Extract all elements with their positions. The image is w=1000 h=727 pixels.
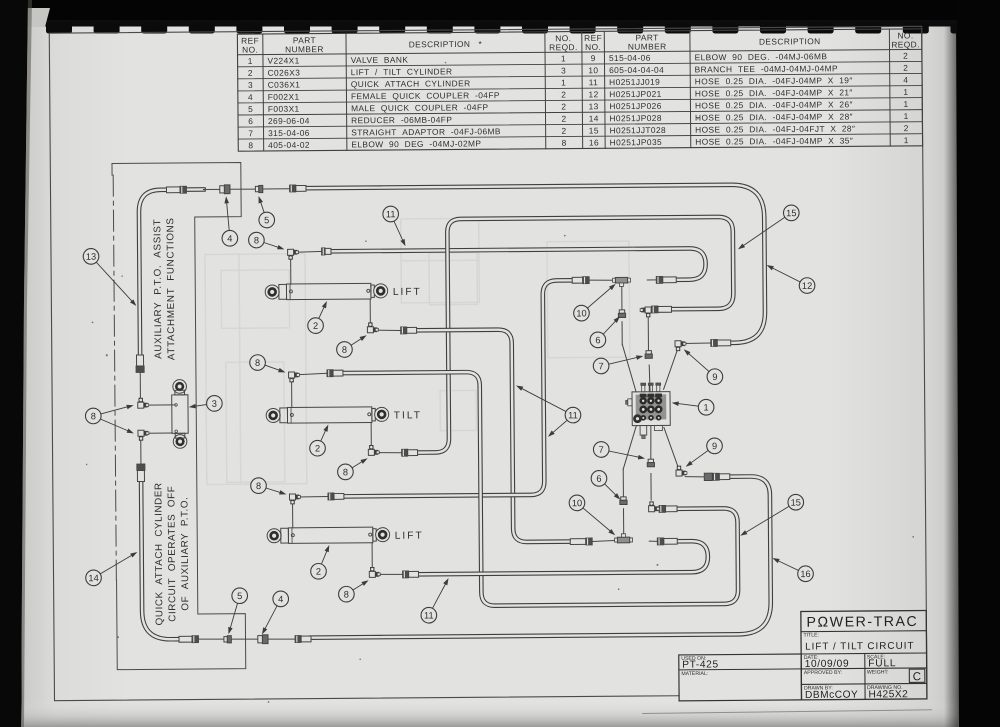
svg-text:12: 12 xyxy=(802,281,812,291)
svg-text:15: 15 xyxy=(589,125,599,135)
svg-text:2: 2 xyxy=(561,90,566,100)
svg-text:5: 5 xyxy=(264,215,269,225)
svg-text:DESCRIPTION: DESCRIPTION xyxy=(759,36,821,46)
svg-text:2: 2 xyxy=(315,443,320,453)
svg-text:16: 16 xyxy=(800,569,810,579)
svg-text:13: 13 xyxy=(86,252,96,262)
svg-text:11: 11 xyxy=(424,610,434,620)
svg-text:LIFT / TILT CIRCUIT: LIFT / TILT CIRCUIT xyxy=(805,641,914,653)
svg-text:NO.: NO. xyxy=(242,45,258,55)
svg-text:8: 8 xyxy=(562,138,567,148)
svg-text:1: 1 xyxy=(904,111,909,121)
svg-text:1: 1 xyxy=(561,77,566,87)
svg-text:C: C xyxy=(913,671,921,683)
svg-text:1: 1 xyxy=(904,135,909,145)
svg-text:REQD.: REQD. xyxy=(891,39,920,49)
svg-text:F002X1: F002X1 xyxy=(268,92,300,102)
svg-text:2: 2 xyxy=(561,114,566,124)
svg-text:3: 3 xyxy=(561,65,566,75)
svg-text:QUICK ATTACH CYLINDER: QUICK ATTACH CYLINDER xyxy=(351,78,471,89)
svg-text:14: 14 xyxy=(589,113,599,123)
svg-text:515-04-06: 515-04-06 xyxy=(609,53,651,63)
svg-text:2: 2 xyxy=(313,321,318,331)
svg-text:405-04-02: 405-04-02 xyxy=(268,140,310,150)
svg-text:HOSE 0.25 DIA. -04FJ-04MP: HOSE 0.25 DIA. -04FJ-04MP X 26″ xyxy=(695,99,853,110)
svg-text:H0251JJT028: H0251JJT028 xyxy=(610,125,667,135)
svg-text:2: 2 xyxy=(903,51,908,61)
svg-text:269-06-04: 269-06-04 xyxy=(268,116,310,126)
svg-text:10/09/09: 10/09/09 xyxy=(805,659,850,670)
svg-text:APPROVED BY:: APPROVED BY: xyxy=(804,670,842,676)
svg-text:2: 2 xyxy=(904,123,909,133)
svg-text:7: 7 xyxy=(599,445,604,455)
svg-text:NUMBER: NUMBER xyxy=(285,44,324,54)
svg-text:4: 4 xyxy=(248,92,253,102)
svg-text:REQD.: REQD. xyxy=(549,42,578,52)
svg-text:6: 6 xyxy=(248,116,253,126)
svg-text:FULL: FULL xyxy=(868,658,896,669)
svg-text:10: 10 xyxy=(576,308,586,318)
svg-text:9: 9 xyxy=(712,441,717,451)
svg-text:7: 7 xyxy=(248,128,253,138)
svg-text:3: 3 xyxy=(212,399,217,409)
svg-text:8: 8 xyxy=(91,411,96,421)
svg-text:5: 5 xyxy=(237,591,242,601)
svg-text:H0251JP028: H0251JP028 xyxy=(609,113,662,123)
svg-text:DBMcCOY: DBMcCOY xyxy=(805,690,858,701)
svg-text:10: 10 xyxy=(588,65,598,75)
svg-text:V224X1: V224X1 xyxy=(267,55,299,65)
svg-text:1: 1 xyxy=(561,53,566,63)
svg-text:F003X1: F003X1 xyxy=(268,104,300,114)
svg-text:NUMBER: NUMBER xyxy=(628,41,667,51)
svg-text:WEIGHT:: WEIGHT: xyxy=(867,670,889,676)
svg-text:14: 14 xyxy=(88,573,98,583)
svg-text:TILT: TILT xyxy=(394,410,422,421)
svg-text:2: 2 xyxy=(561,102,566,112)
svg-text:8: 8 xyxy=(255,358,260,368)
svg-text:12: 12 xyxy=(588,89,598,99)
svg-text:605-04-04-04: 605-04-04-04 xyxy=(609,65,664,75)
svg-text:C026X3: C026X3 xyxy=(268,68,301,78)
svg-text:CIRCUIT OPERATES OFF: CIRCUIT OPERATES OFF xyxy=(166,486,178,622)
svg-text:11: 11 xyxy=(589,77,599,87)
svg-text:8: 8 xyxy=(256,481,261,491)
svg-text:1: 1 xyxy=(903,99,908,109)
svg-text:4: 4 xyxy=(278,594,283,604)
svg-text:NO.: NO. xyxy=(585,42,601,52)
svg-text:H0251JP035: H0251JP035 xyxy=(610,137,663,147)
svg-text:AUXILIARY P.T.O. ASSIST: AUXILIARY P.T.O. ASSIST xyxy=(152,219,164,359)
svg-text:4: 4 xyxy=(903,75,908,85)
svg-text:1: 1 xyxy=(248,56,253,66)
svg-text:DESCRIPTION *: DESCRIPTION * xyxy=(409,39,483,50)
svg-text:13: 13 xyxy=(589,101,599,111)
svg-text:8: 8 xyxy=(342,345,347,355)
svg-text:REDUCER -06MB-04FP: REDUCER -06MB-04FP xyxy=(351,115,452,126)
svg-text:3: 3 xyxy=(248,80,253,90)
svg-text:1: 1 xyxy=(903,87,908,97)
svg-text:HOSE 0.25 DIA. -04FJ-04MP: HOSE 0.25 DIA. -04FJ-04MP X 19″ xyxy=(695,75,853,86)
svg-text:8: 8 xyxy=(254,235,259,245)
svg-text:7: 7 xyxy=(598,361,603,371)
svg-text:HOSE 0.25 DIA. -04FJ-04MP: HOSE 0.25 DIA. -04FJ-04MP X 35″ xyxy=(695,135,853,146)
svg-text:HOSE 0.25 DIA. -04FJ-04FJT: HOSE 0.25 DIA. -04FJ-04FJT X 28″ xyxy=(695,123,855,134)
svg-text:9: 9 xyxy=(712,372,717,382)
svg-text:C036X1: C036X1 xyxy=(268,80,301,90)
svg-text:ELBOW 90 DEG -04MJ-02MP: ELBOW 90 DEG -04MJ-02MP xyxy=(351,138,481,149)
svg-text:HOSE 0.25 DIA. -04FJ-04MP: HOSE 0.25 DIA. -04FJ-04MP X 28″ xyxy=(695,111,853,122)
svg-text:9: 9 xyxy=(591,53,596,63)
svg-text:2: 2 xyxy=(903,63,908,73)
svg-text:11: 11 xyxy=(568,410,578,420)
svg-text:LIFT: LIFT xyxy=(395,531,424,542)
svg-text:6: 6 xyxy=(595,335,600,345)
svg-text:ATTACHMENT FUNCTIONS: ATTACHMENT FUNCTIONS xyxy=(165,217,177,360)
svg-text:ELBOW 90 DEG. -04MJ-06MB: ELBOW 90 DEG. -04MJ-06MB xyxy=(695,51,828,62)
svg-text:VALVE BANK: VALVE BANK xyxy=(351,55,409,65)
svg-text:15: 15 xyxy=(786,208,796,218)
svg-text:2: 2 xyxy=(316,567,321,577)
svg-text:H0251JP021: H0251JP021 xyxy=(609,89,662,99)
svg-text:15: 15 xyxy=(791,497,801,507)
svg-text:H0251JP026: H0251JP026 xyxy=(609,101,662,111)
svg-text:MATERIAL:: MATERIAL: xyxy=(681,671,708,677)
svg-text:BRANCH TEE -04MJ-04MJ-04MP: BRANCH TEE -04MJ-04MJ-04MP xyxy=(695,63,838,74)
svg-text:FEMALE QUICK COUPLER -04FP: FEMALE QUICK COUPLER -04FP xyxy=(351,90,500,101)
svg-text:LIFT / TILT CYLINDER: LIFT / TILT CYLINDER xyxy=(351,66,453,77)
svg-text:11: 11 xyxy=(386,209,396,219)
svg-text:PΩWER-TRAC: PΩWER-TRAC xyxy=(806,614,918,631)
svg-text:6: 6 xyxy=(596,474,601,484)
svg-text:TITLE:: TITLE: xyxy=(803,632,819,638)
svg-text:H0251JJ019: H0251JJ019 xyxy=(609,77,660,87)
svg-text:8: 8 xyxy=(343,467,348,477)
svg-text:QUICK ATTACH CYLINDER: QUICK ATTACH CYLINDER xyxy=(153,482,165,625)
svg-text:MALE QUICK COUPLER -04FP: MALE QUICK COUPLER -04FP xyxy=(351,102,488,113)
svg-text:4: 4 xyxy=(227,234,232,244)
svg-text:HOSE 0.25 DIA. -04FJ-04MP: HOSE 0.25 DIA. -04FJ-04MP X 21″ xyxy=(695,87,853,98)
svg-text:LIFT: LIFT xyxy=(393,287,422,298)
svg-text:2: 2 xyxy=(248,68,253,78)
svg-text:5: 5 xyxy=(248,104,253,114)
svg-text:315-04-06: 315-04-06 xyxy=(268,128,310,138)
svg-text:OF AUXILIARY P.T.O.: OF AUXILIARY P.T.O. xyxy=(179,497,191,611)
svg-text:16: 16 xyxy=(589,137,599,147)
svg-text:STRAIGHT ADAPTOR -04FJ-06MB: STRAIGHT ADAPTOR -04FJ-06MB xyxy=(351,126,501,137)
svg-text:8: 8 xyxy=(248,140,253,150)
svg-text:H425X2: H425X2 xyxy=(868,689,908,700)
svg-text:10: 10 xyxy=(572,498,582,508)
svg-text:8: 8 xyxy=(344,589,349,599)
svg-text:1: 1 xyxy=(703,403,708,413)
svg-text:2: 2 xyxy=(561,126,566,136)
svg-text:PT-425: PT-425 xyxy=(682,659,719,670)
